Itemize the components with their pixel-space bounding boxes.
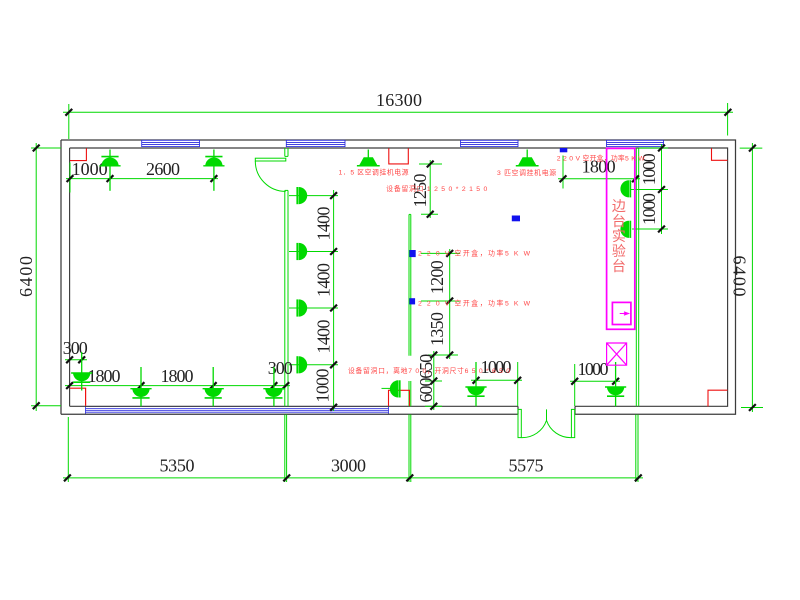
svg-text:2600: 2600 — [146, 159, 180, 179]
svg-text:1．5 区空调挂机电源: 1．5 区空调挂机电源 — [339, 168, 409, 177]
svg-text:1000: 1000 — [313, 369, 333, 403]
svg-text:16300: 16300 — [376, 90, 422, 110]
svg-text:3000: 3000 — [331, 456, 366, 476]
svg-text:2 2 0 V 空开盒，功率5 K W: 2 2 0 V 空开盒，功率5 K W — [418, 298, 531, 307]
svg-text:验: 验 — [612, 243, 626, 259]
svg-text:6400: 6400 — [729, 256, 749, 297]
svg-text:2 2 0 V 空开盒，功率5 K W: 2 2 0 V 空开盒，功率5 K W — [418, 249, 531, 258]
svg-text:1000: 1000 — [578, 359, 609, 379]
svg-text:设备留洞口 1 2 5 0 * 2 1 5 0: 设备留洞口 1 2 5 0 * 2 1 5 0 — [386, 184, 487, 193]
svg-text:300: 300 — [268, 358, 293, 378]
svg-text:台: 台 — [612, 213, 626, 229]
svg-text:台: 台 — [612, 258, 626, 274]
svg-text:600: 600 — [416, 378, 436, 403]
svg-text:1000: 1000 — [72, 159, 108, 179]
svg-text:设备留洞口，离地7 0 0，开洞尺寸6 5 0 * 6 5: 设备留洞口，离地7 0 0，开洞尺寸6 5 0 * 6 5 0 — [348, 366, 510, 375]
svg-text:实: 实 — [612, 228, 626, 244]
svg-text:6400: 6400 — [16, 256, 36, 297]
svg-text:300: 300 — [63, 338, 88, 358]
svg-text:1200: 1200 — [427, 260, 447, 294]
svg-text:2 2 0 V 空开盒，功率5 K W: 2 2 0 V 空开盒，功率5 K W — [557, 154, 646, 163]
svg-text:1400: 1400 — [313, 320, 333, 354]
svg-text:1400: 1400 — [313, 207, 333, 241]
svg-text:1800: 1800 — [88, 366, 121, 386]
svg-text:1000: 1000 — [639, 193, 659, 225]
svg-text:5575: 5575 — [509, 456, 544, 476]
svg-text:1800: 1800 — [161, 366, 194, 386]
svg-text:3 匹空调挂机电源: 3 匹空调挂机电源 — [497, 168, 556, 177]
svg-text:1400: 1400 — [313, 263, 333, 297]
svg-text:1350: 1350 — [427, 312, 447, 346]
svg-text:边: 边 — [612, 198, 626, 214]
svg-text:5350: 5350 — [160, 456, 195, 476]
